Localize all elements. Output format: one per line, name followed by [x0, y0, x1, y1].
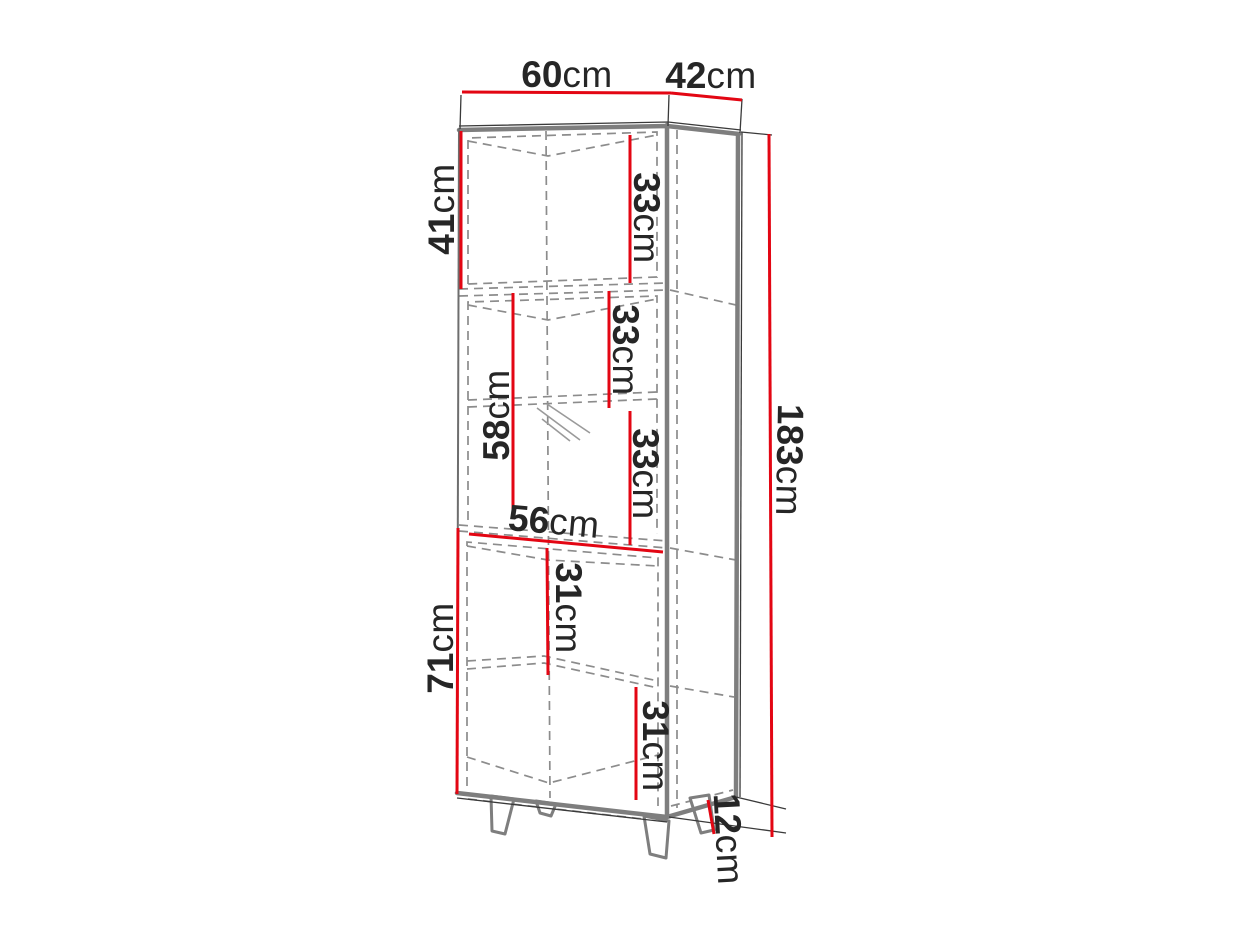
dim-shelf-33b-label: 33cm — [606, 304, 647, 395]
dim-width-60-label: 60cm — [521, 54, 612, 95]
dimension-lines — [457, 92, 772, 837]
dim-leg-height-12-label: 12cm — [706, 792, 752, 886]
cabinet-outline — [457, 122, 742, 822]
dim-shelf-33a-label: 33cm — [627, 172, 668, 263]
cabinet-legs — [491, 795, 714, 858]
furniture-dimension-diagram: 60cm 42cm 41cm 33cm 33cm 58cm 33cm 56cm … — [0, 0, 1248, 936]
dim-depth-42-label: 42cm — [665, 55, 756, 96]
dim-shelf-31b-label: 31cm — [636, 700, 677, 791]
glass-reflection-icon — [537, 404, 590, 441]
dim-inner-width-56-label: 56cm — [507, 497, 602, 546]
dim-height-183-label: 183cm — [769, 404, 812, 517]
diagram-drawing: 60cm 42cm 41cm 33cm 33cm 58cm 33cm 56cm … — [0, 0, 1248, 936]
hidden-edges — [459, 130, 736, 820]
dimension-labels: 60cm 42cm 41cm 33cm 33cm 58cm 33cm 56cm … — [420, 54, 812, 886]
dim-glass-section-58-label: 58cm — [476, 369, 517, 460]
dim-shelf-31a-label: 31cm — [549, 562, 590, 653]
dim-shelf-33c-label: 33cm — [626, 428, 667, 519]
dim-bottom-section-71-label: 71cm — [420, 602, 461, 693]
dim-line-31a — [547, 548, 548, 675]
dim-top-section-41-label: 41cm — [421, 163, 462, 254]
